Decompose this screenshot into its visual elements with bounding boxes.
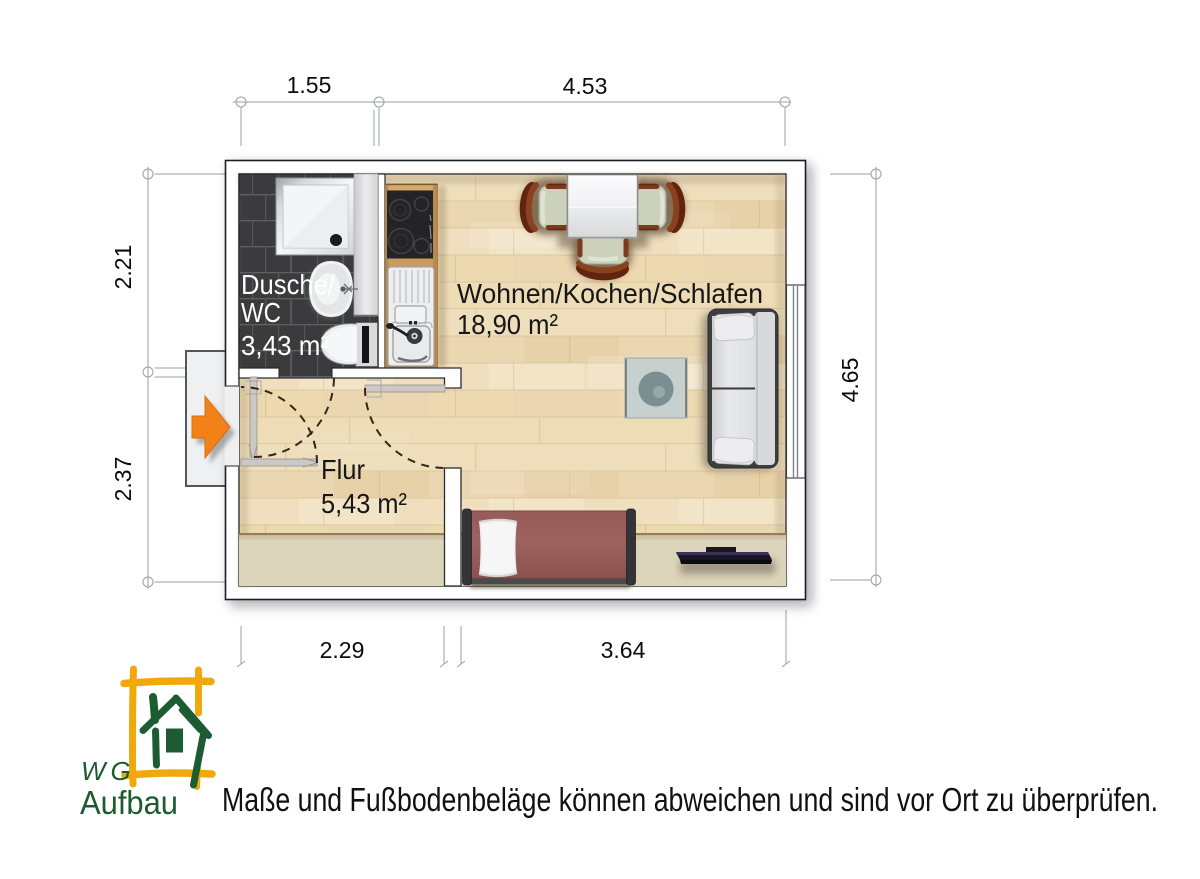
svg-text:Flur: Flur — [321, 454, 365, 485]
svg-text:4.53: 4.53 — [563, 73, 608, 99]
svg-text:2.21: 2.21 — [110, 245, 136, 290]
svg-text:1.55: 1.55 — [287, 72, 332, 98]
svg-text:WG: WG — [81, 756, 136, 786]
svg-text:18,90 m²: 18,90 m² — [457, 309, 558, 340]
svg-text:5,43 m²: 5,43 m² — [321, 488, 407, 519]
svg-text:Wohnen/Kochen/Schlafen: Wohnen/Kochen/Schlafen — [457, 278, 763, 309]
svg-text:Aufbau: Aufbau — [80, 784, 178, 821]
svg-text:Maße und Fußbodenbeläge können: Maße und Fußbodenbeläge können abweichen… — [222, 781, 1158, 818]
svg-text:4.65: 4.65 — [837, 358, 863, 403]
svg-text:2.37: 2.37 — [110, 457, 136, 502]
svg-text:2.29: 2.29 — [320, 637, 365, 663]
svg-text:WC: WC — [241, 297, 281, 328]
svg-text:3,43 m²: 3,43 m² — [241, 330, 329, 361]
svg-text:3.64: 3.64 — [601, 637, 646, 663]
svg-text:Dusche/: Dusche/ — [241, 269, 335, 300]
